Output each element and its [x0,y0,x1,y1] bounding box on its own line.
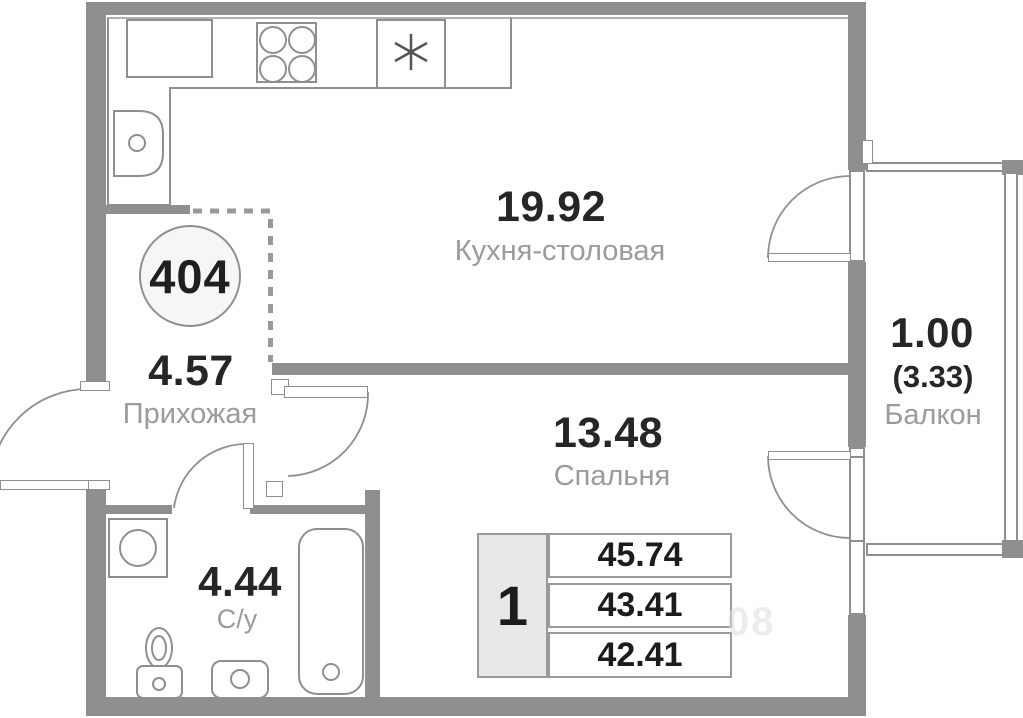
wall-bathroom-top-left [86,505,172,514]
wall-left-upper [86,2,106,386]
bathroom-door-swing [174,444,247,508]
appliance-asterisk-icon [377,20,445,88]
toilet-icon [137,628,182,698]
apartment-number-badge: 404 [139,225,241,327]
bathroom-door-leaf [243,443,254,509]
bedroom-balcony-doorway [849,455,865,541]
balcony-glazing-top [866,162,1004,172]
balcony-glazing-connector [862,140,873,164]
kitchen-balcony-door-leaf [768,253,851,262]
rooms-count-cell: 1 [477,533,548,678]
kitchen-balcony-window-frame [849,170,865,262]
area-summary-table: 1 45.74 43.41 42.41 [477,533,732,678]
kitchen-worktop-icon [127,20,212,77]
bedroom-label: Спальня [554,461,671,491]
balcony-glazing-right [1004,172,1018,542]
balcony-corner-cap-bottom [1002,540,1023,558]
total-area-cell: 45.74 [548,533,732,578]
balcony-area-secondary: (3.33) [893,361,974,394]
balcony-door-jamb [849,447,865,458]
balcony-glazing-bottom [866,543,1004,556]
washing-machine-icon [109,519,167,577]
washbasin-icon [212,661,268,698]
bathroom-area: 4.44 [198,560,282,604]
wall-kitchen-bedroom [272,363,848,375]
wall-left-lower [86,488,106,716]
bedroom-balcony-window-frame [849,540,865,615]
kitchen-area: 19.92 [496,185,606,230]
entrance-door-leaf [0,480,89,490]
bedroom-door-swing [288,392,368,476]
bedroom-door-leaf [284,386,368,398]
hallway-area: 4.57 [148,349,234,394]
bedroom-balcony-door-leaf [768,451,851,460]
wall-top [86,2,866,15]
wall-bottom [86,697,866,716]
wall-kitchen-stub [106,205,190,214]
wall-bathroom-right [365,490,380,697]
area-no-balcony-cell: 43.41 [548,583,732,628]
kitchen-sink-icon [114,111,163,176]
apartment-number: 404 [149,249,230,304]
bedroom-balcony-door-swing [768,456,849,538]
wall-right-middle [848,262,866,447]
balcony-area: 1.00 [890,311,974,355]
entrance-door-swing [0,389,88,487]
balcony-label: Балкон [884,400,981,430]
stove-icon [257,23,316,82]
kitchen-balcony-door-swing [768,176,849,258]
entrance-jamb-top [80,381,110,391]
wall-right-lower [848,615,866,716]
bedroom-door-jamb-bottom [266,481,283,497]
bedroom-area: 13.48 [553,411,663,456]
bathroom-label: С/у [217,605,258,633]
floor-plan: 404 19.92 Кухня-столовая 4.57 Прихожая 1… [0,0,1023,718]
kitchen-label: Кухня-столовая [455,236,666,266]
watermark-fragment: 08 [727,600,776,645]
living-area-cell: 42.41 [548,632,732,678]
hallway-label: Прихожая [123,399,257,429]
wall-bathroom-top-right [250,505,380,514]
bathtub-icon [299,529,363,694]
